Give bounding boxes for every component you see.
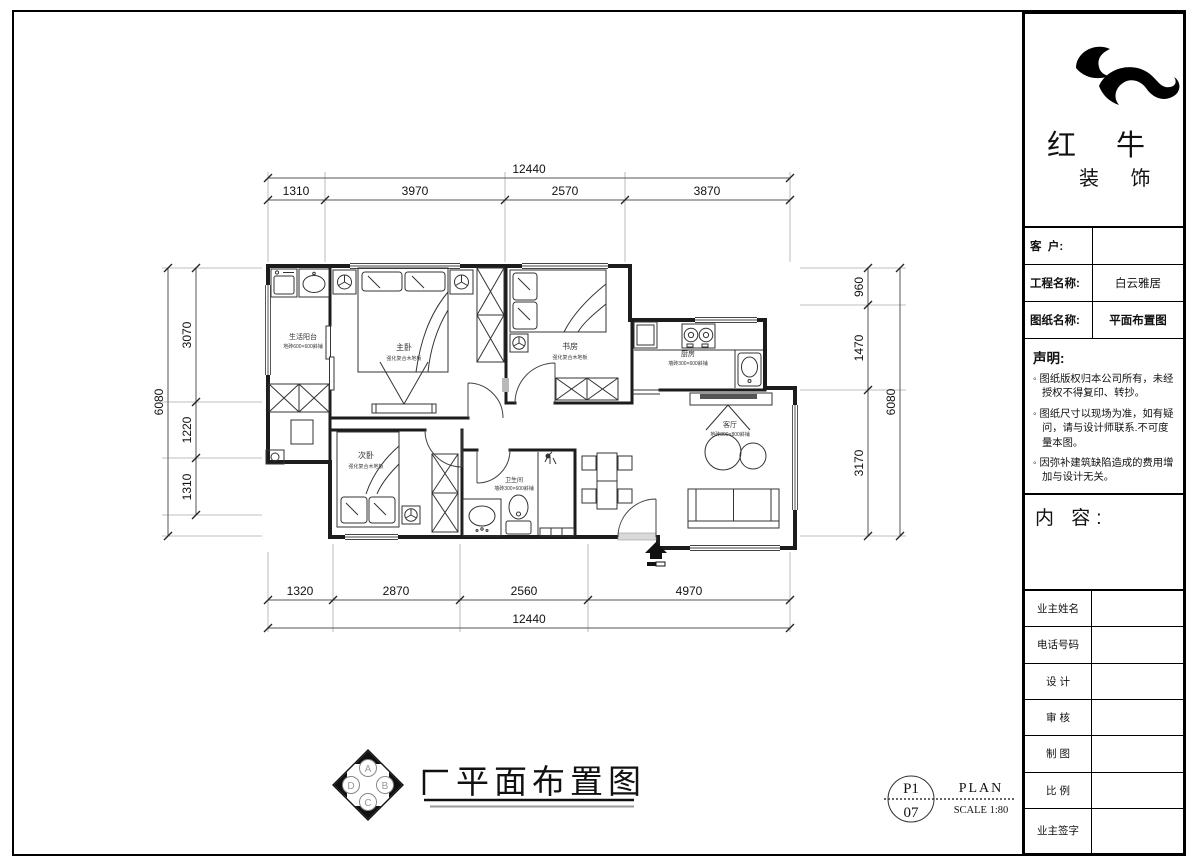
coffee-table-small xyxy=(740,443,766,469)
dim-top-seg4: 3870 xyxy=(694,184,721,198)
project-value: 白云雅居 xyxy=(1093,265,1183,301)
fridge xyxy=(634,322,657,348)
drawing-name-value: 平面布置图 xyxy=(1093,302,1183,338)
dim-left-seg2: 1220 xyxy=(180,416,194,443)
plan-label: PLAN xyxy=(959,781,1004,796)
window-living-right xyxy=(792,405,799,510)
statement-title: 声明: xyxy=(1033,347,1177,367)
title-block: 红 牛 装 饰 客 户: 工程名称: 白云雅居 图纸名称: 平面布置图 声明: … xyxy=(1022,11,1186,856)
compass-c: C xyxy=(364,798,371,809)
master-wardrobe xyxy=(477,268,504,362)
table-row: 比 例 xyxy=(1025,773,1183,809)
door-jamb xyxy=(502,378,509,392)
bath-basin xyxy=(463,499,501,536)
sofa xyxy=(688,489,779,528)
window-second-bottom xyxy=(345,534,398,541)
room-labels: 生活阳台 地砖600×600斜铺 主卧 强化复合木地板 书房 强化复合木地板 厨… xyxy=(283,332,750,492)
dim-left-seg3: 1310 xyxy=(180,473,194,500)
windows xyxy=(265,263,799,552)
dim-bottom-seg3: 2560 xyxy=(511,584,538,598)
balcony-sink xyxy=(299,269,329,297)
study-lamp xyxy=(510,334,528,352)
row-value xyxy=(1092,809,1183,853)
compass-icon: A B C D xyxy=(333,750,403,820)
water-heater xyxy=(291,420,313,444)
window-balcony-left xyxy=(265,285,272,375)
study-bed xyxy=(510,270,606,332)
customer-label: 客 户: xyxy=(1025,228,1093,264)
sheet-title: 平面布置图 xyxy=(424,763,646,807)
table-row: 制 图 xyxy=(1025,736,1183,772)
customer-value xyxy=(1093,228,1183,264)
table-row: 业主签字 xyxy=(1025,809,1183,853)
room-second-floor: 强化复合木地板 xyxy=(348,463,383,470)
content-label: 内 容: xyxy=(1035,508,1108,529)
room-bath-name: 卫生间 xyxy=(505,476,523,484)
kitchen-counter xyxy=(632,350,763,394)
shower-area xyxy=(538,452,574,536)
door-second xyxy=(425,430,462,467)
row-value xyxy=(1092,627,1183,662)
window-kitchen-top xyxy=(695,317,757,324)
table-row: 业主姓名 xyxy=(1025,591,1183,627)
row-label: 比 例 xyxy=(1025,773,1092,808)
room-master-name: 主卧 xyxy=(396,342,412,352)
project-label: 工程名称: xyxy=(1025,265,1093,301)
drawing-name-row: 图纸名称: 平面布置图 xyxy=(1025,302,1183,339)
table-row: 设 计 xyxy=(1025,664,1183,700)
dim-right-total: 6080 xyxy=(884,388,898,415)
dining-set xyxy=(582,453,632,509)
room-second-name: 次卧 xyxy=(358,450,374,460)
row-label: 业主姓名 xyxy=(1025,591,1092,626)
door-master xyxy=(468,383,503,418)
brand-name: 红 牛 xyxy=(1025,122,1183,164)
room-study-floor: 强化复合木地板 xyxy=(552,354,587,361)
stove xyxy=(682,324,715,348)
study-cabinet xyxy=(556,378,618,400)
table-row: 电话号码 xyxy=(1025,627,1183,663)
room-kitchen-name: 厨房 xyxy=(681,349,695,358)
room-balcony-floor: 地砖600×600斜铺 xyxy=(283,343,323,350)
entry-threshold xyxy=(618,533,656,540)
signature-table: 业主姓名 电话号码 设 计 审 核 制 图 比 例 业主签字 xyxy=(1025,591,1183,853)
kitchen-sink xyxy=(738,353,761,386)
second-bed xyxy=(337,432,399,527)
row-value xyxy=(1092,736,1183,771)
compass-d: D xyxy=(347,781,354,792)
room-balcony-name: 生活阳台 xyxy=(289,332,317,341)
drawing-sheet: 12440 1310 3970 2570 3870 1320 2870 2560… xyxy=(0,0,1200,865)
room-study-name: 书房 xyxy=(562,341,578,351)
sheet-number-stamp: P1 07 PLAN SCALE 1:80 xyxy=(884,776,1014,822)
row-label: 审 核 xyxy=(1025,700,1092,735)
dim-bottom-seg1: 1320 xyxy=(287,584,314,598)
interior-walls xyxy=(330,266,765,537)
dim-bottom-seg4: 4970 xyxy=(676,584,703,598)
door-entry xyxy=(618,499,656,537)
plan-canvas: 12440 1310 3970 2570 3870 1320 2870 2560… xyxy=(0,0,1200,865)
dim-left-seg1: 3070 xyxy=(180,321,194,348)
master-nightstand-right xyxy=(450,270,473,294)
scale-label: SCALE 1:80 xyxy=(954,805,1009,816)
master-tv-bench xyxy=(372,362,436,413)
row-value xyxy=(1092,591,1183,626)
dimension-labels: 12440 1310 3970 2570 3870 1320 2870 2560… xyxy=(152,162,898,626)
dim-top-total: 12440 xyxy=(512,162,546,176)
dim-left-total: 6080 xyxy=(152,388,166,415)
dim-right-seg1: 960 xyxy=(852,277,866,297)
compass-b: B xyxy=(382,781,389,792)
window-study-top xyxy=(522,263,608,270)
row-value xyxy=(1092,664,1183,699)
room-kitchen-floor: 墙砖300×600斜铺 xyxy=(668,360,708,367)
second-wardrobe xyxy=(432,454,458,532)
furniture xyxy=(266,268,779,536)
toilet xyxy=(506,495,531,534)
entry-marker-icon xyxy=(645,542,667,566)
dim-bottom-total: 12440 xyxy=(512,612,546,626)
room-master-floor: 强化复合木地板 xyxy=(386,355,421,362)
sheet-no-bottom: 07 xyxy=(904,805,920,821)
room-bath-floor: 墙砖300×600斜铺 xyxy=(494,485,534,492)
window-living-bottom xyxy=(690,545,780,552)
row-label: 业主签字 xyxy=(1025,809,1092,853)
washing-machine xyxy=(271,269,297,297)
sliding-door xyxy=(326,326,334,390)
row-label: 设 计 xyxy=(1025,664,1092,699)
master-nightstand-left xyxy=(333,270,356,294)
dim-top-seg3: 2570 xyxy=(552,184,579,198)
statement-item: ◦ 图纸尺寸以现场为准，如有疑问，请与设计师联系.不可度量本图。 xyxy=(1033,408,1177,451)
dim-right-seg3: 3170 xyxy=(852,449,866,476)
floor-plan: 生活阳台 地砖600×600斜铺 主卧 强化复合木地板 书房 强化复合木地板 厨… xyxy=(265,263,799,567)
drawing-name-label: 图纸名称: xyxy=(1025,302,1093,338)
content-section: 内 容: xyxy=(1025,495,1183,591)
dim-top-seg2: 3970 xyxy=(402,184,429,198)
project-row: 工程名称: 白云雅居 xyxy=(1025,265,1183,302)
room-living-floor: 地砖800×800斜铺 xyxy=(710,431,750,438)
room-living-name: 客厅 xyxy=(723,420,737,429)
sheet-title-text: 平面布置图 xyxy=(456,763,646,800)
row-label: 电话号码 xyxy=(1025,627,1092,662)
balcony-cabinet xyxy=(269,384,329,412)
brand-area: 红 牛 装 饰 xyxy=(1025,14,1183,228)
statement-item: ◦ 因弥补建筑缺陷造成的费用增加与设计无关。 xyxy=(1033,457,1177,486)
coffee-table-large xyxy=(705,434,741,470)
customer-row: 客 户: xyxy=(1025,228,1183,265)
dim-right-seg2: 1470 xyxy=(852,334,866,361)
brand-logo xyxy=(1061,40,1181,124)
row-value xyxy=(1092,700,1183,735)
dim-bottom-seg2: 2870 xyxy=(383,584,410,598)
brand-subname: 装 饰 xyxy=(1079,162,1164,191)
door-study xyxy=(515,363,555,403)
dim-top-seg1: 1310 xyxy=(283,184,310,198)
table-row: 审 核 xyxy=(1025,700,1183,736)
statement-section: 声明: ◦ 图纸版权归本公司所有，未经授权不得复印、转抄。 ◦ 图纸尺寸以现场为… xyxy=(1025,339,1183,495)
compass-a: A xyxy=(365,764,372,775)
second-lamp xyxy=(402,506,420,524)
exterior-walls xyxy=(268,266,795,548)
statement-item: ◦ 图纸版权归本公司所有，未经授权不得复印、转抄。 xyxy=(1033,373,1177,402)
sheet-no-top: P1 xyxy=(903,781,919,797)
row-value xyxy=(1092,773,1183,808)
row-label: 制 图 xyxy=(1025,736,1092,771)
